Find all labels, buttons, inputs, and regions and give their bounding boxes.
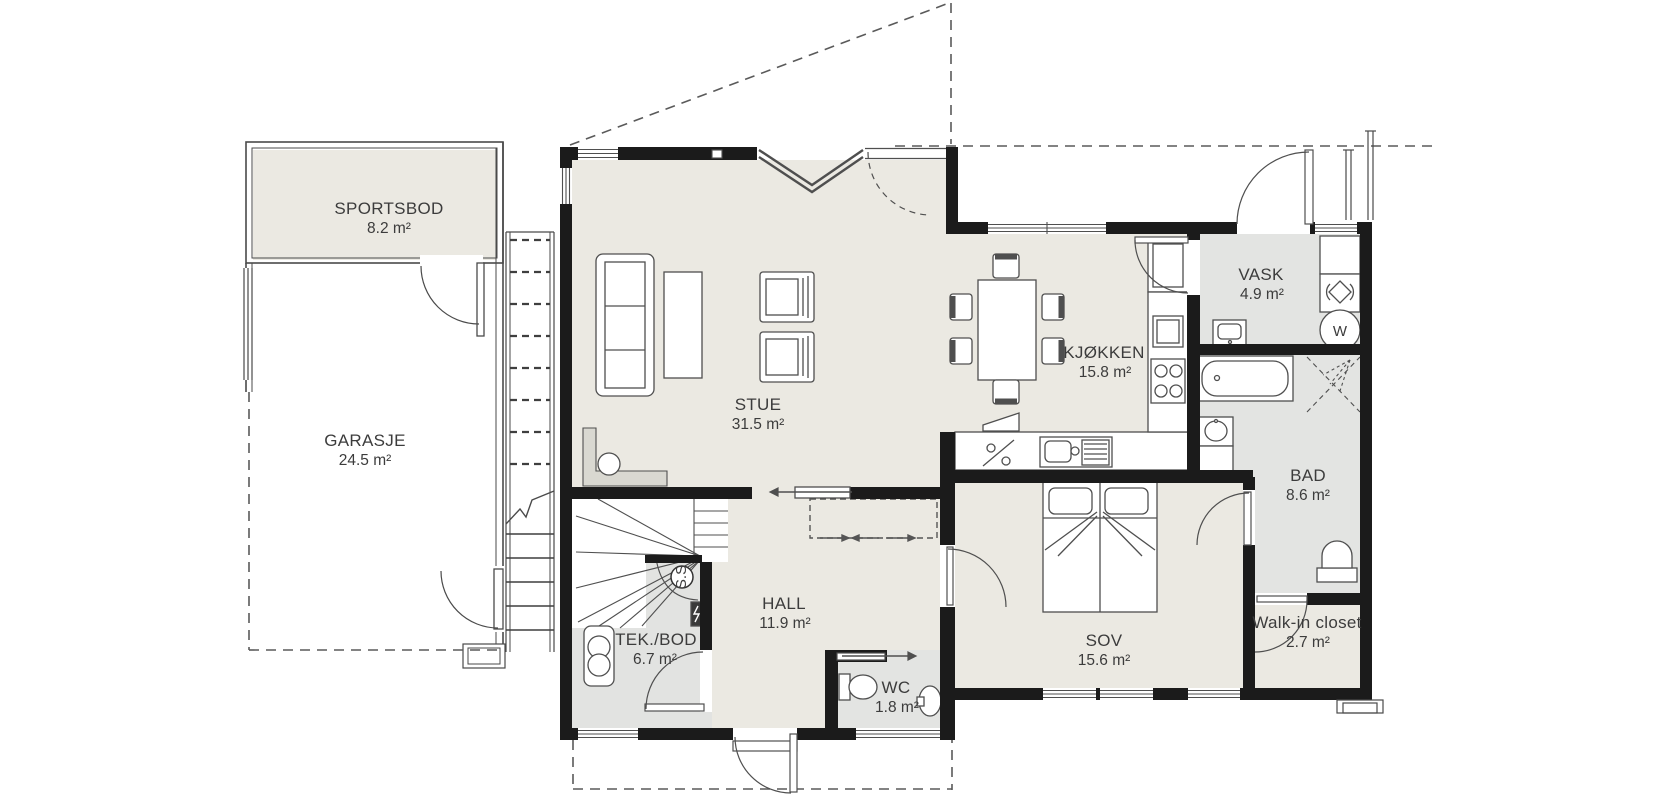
svg-text:BAD: BAD	[1290, 466, 1326, 485]
wall-north-step	[946, 147, 958, 234]
window-sov-south-1	[1043, 688, 1096, 700]
window-stue-north	[578, 147, 618, 160]
sov-furniture	[1043, 482, 1157, 612]
wall-tekbod-east	[700, 562, 712, 650]
svg-text:SPORTSBOD: SPORTSBOD	[334, 199, 443, 218]
wall-vask-bad	[1187, 344, 1372, 355]
svg-text:SOV: SOV	[1086, 631, 1123, 650]
svg-text:4.9 m²: 4.9 m²	[1240, 286, 1284, 303]
wall-kitchen-sov	[940, 470, 1253, 483]
dining-table	[978, 280, 1036, 380]
window-sov-south-2	[1100, 688, 1153, 700]
svg-text:24.5 m²: 24.5 m²	[339, 452, 392, 469]
svg-text:8.6 m²: 8.6 m²	[1286, 487, 1330, 504]
rear-step	[1337, 700, 1383, 713]
wc-toilet	[839, 674, 877, 700]
pillow-left	[1049, 488, 1092, 514]
stair-break-line	[506, 491, 554, 524]
window-sov-south-3	[1188, 688, 1240, 700]
vask-cabinet-1	[1320, 236, 1360, 274]
svg-text:TEK./BOD: TEK./BOD	[615, 630, 697, 649]
wall-bad-west-top	[1243, 477, 1255, 490]
svg-text:15.6 m²: 15.6 m²	[1078, 652, 1131, 669]
washing-machine-label: W	[1333, 323, 1348, 340]
wall-corridor-lower	[940, 607, 955, 740]
svg-text:GARASJE: GARASJE	[324, 431, 405, 450]
window-vask-north	[1315, 222, 1357, 234]
window-tekbod-south	[578, 728, 638, 740]
wall-marker	[712, 150, 722, 158]
water-heater	[584, 626, 614, 686]
vask-wall-sink	[1213, 320, 1246, 347]
svg-text:31.5 m²: 31.5 m²	[732, 416, 785, 433]
armchair-2	[760, 332, 814, 382]
window-kitchen-north	[988, 222, 1106, 234]
svg-text:VASK: VASK	[1238, 265, 1284, 284]
external-stair	[506, 232, 554, 652]
stair-treads-upper	[510, 240, 550, 464]
stair-treads-lower	[506, 534, 554, 630]
wall-bad-closet-east	[1307, 593, 1372, 605]
garage-side-door	[441, 566, 506, 632]
room-label-garasje: GARASJE 24.5 m²	[324, 431, 405, 469]
wall-vask-west	[1187, 295, 1200, 473]
window-wc-south	[856, 728, 940, 740]
svg-text:WC: WC	[882, 678, 911, 697]
svg-text:Walk-in closet: Walk-in closet	[1252, 613, 1361, 632]
armchair-1	[760, 272, 814, 322]
wall-vask-west-top	[1187, 234, 1200, 240]
cooktop	[1151, 359, 1185, 403]
bad-vanity	[1199, 417, 1233, 471]
svg-text:STUE: STUE	[735, 395, 782, 414]
kitchen-counter-east	[1148, 239, 1188, 432]
wood-stove	[598, 453, 620, 475]
pillow-right	[1105, 488, 1148, 514]
stair-circle-label: S.S	[673, 565, 690, 589]
wall-wc-west	[825, 662, 838, 740]
svg-text:KJØKKEN: KJØKKEN	[1063, 343, 1144, 362]
svg-text:6.7 m²: 6.7 m²	[633, 651, 677, 668]
wall-bad-west-bottom	[1243, 545, 1255, 593]
wall-west	[560, 147, 572, 740]
svg-text:15.8 m²: 15.8 m²	[1079, 364, 1132, 381]
sportsbod-door	[420, 255, 484, 336]
vask-entry-door	[1237, 150, 1313, 234]
svg-text:2.7 m²: 2.7 m²	[1286, 634, 1330, 651]
wall-stair-stub	[645, 555, 702, 563]
main-entry-door	[733, 728, 797, 793]
floor-plan-drawing: S.S	[0, 0, 1670, 800]
coffee-table	[664, 272, 702, 378]
sofa	[596, 254, 654, 396]
bathtub	[1197, 356, 1293, 401]
roof-overhang-diagonal	[570, 3, 949, 145]
double-bed	[1043, 482, 1157, 612]
svg-text:11.9 m²: 11.9 m²	[759, 615, 810, 632]
svg-text:8.2 m²: 8.2 m²	[367, 220, 411, 237]
svg-text:HALL: HALL	[762, 594, 806, 613]
wall-corridor-upper	[940, 432, 955, 545]
kitchen-sink	[1040, 437, 1112, 467]
wall-stue-hall-west	[560, 487, 752, 499]
floor-plan: S.S	[0, 0, 1670, 800]
window-stue-west	[560, 168, 572, 204]
garage-window	[242, 268, 255, 380]
svg-text:1.8 m²: 1.8 m²	[875, 699, 919, 716]
wall-south-sov	[955, 688, 1372, 700]
wall-stue-hall-east	[850, 487, 940, 499]
wall-east	[1360, 222, 1372, 700]
wall-bad-closet-west	[1243, 593, 1255, 605]
